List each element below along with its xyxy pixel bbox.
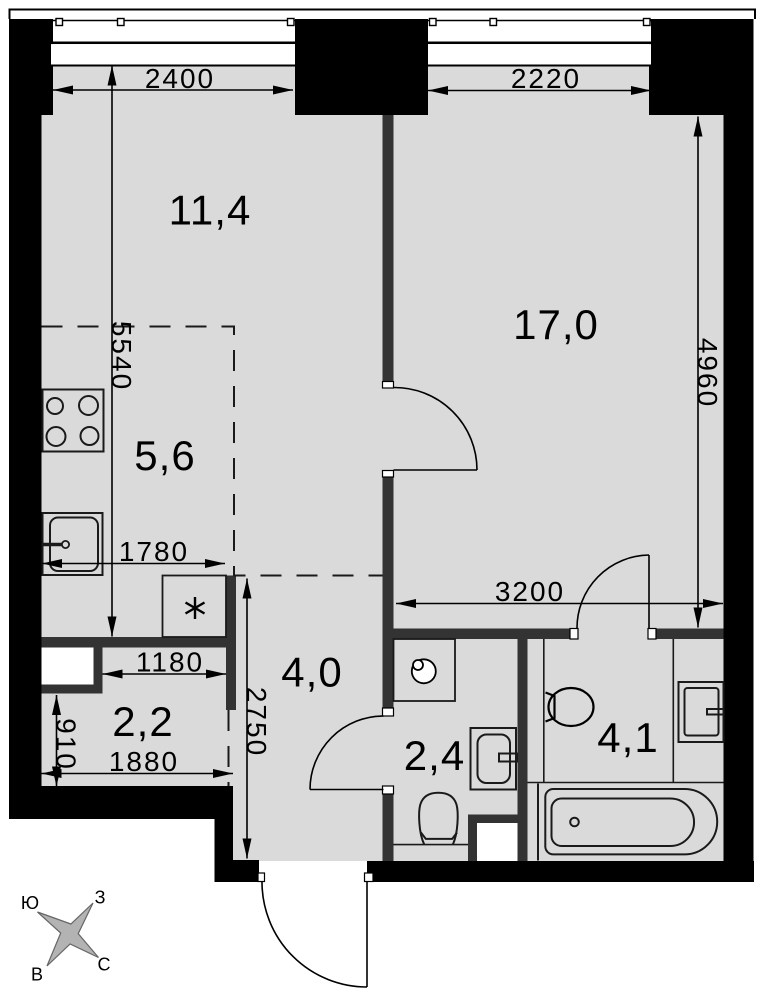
svg-text:17,0: 17,0 (513, 301, 599, 348)
svg-text:Ю: Ю (21, 893, 39, 913)
svg-text:З: З (95, 888, 106, 908)
svg-text:2,4: 2,4 (404, 732, 465, 779)
svg-text:1180: 1180 (136, 647, 204, 678)
svg-text:4,0: 4,0 (281, 649, 342, 696)
svg-text:1880: 1880 (109, 746, 179, 777)
svg-text:В: В (31, 965, 43, 985)
svg-text:5540: 5540 (106, 321, 137, 391)
svg-text:910: 910 (51, 718, 82, 771)
svg-text:2,2: 2,2 (112, 698, 173, 745)
svg-text:2750: 2750 (241, 687, 272, 757)
svg-text:1780: 1780 (119, 536, 189, 567)
svg-text:4960: 4960 (692, 338, 723, 408)
svg-text:2400: 2400 (145, 63, 215, 94)
svg-text:11,4: 11,4 (169, 187, 252, 234)
svg-text:4,1: 4,1 (597, 714, 658, 761)
svg-text:С: С (98, 955, 111, 975)
svg-text:5,6: 5,6 (134, 432, 195, 479)
svg-text:3200: 3200 (495, 576, 565, 607)
svg-text:2220: 2220 (511, 63, 581, 94)
